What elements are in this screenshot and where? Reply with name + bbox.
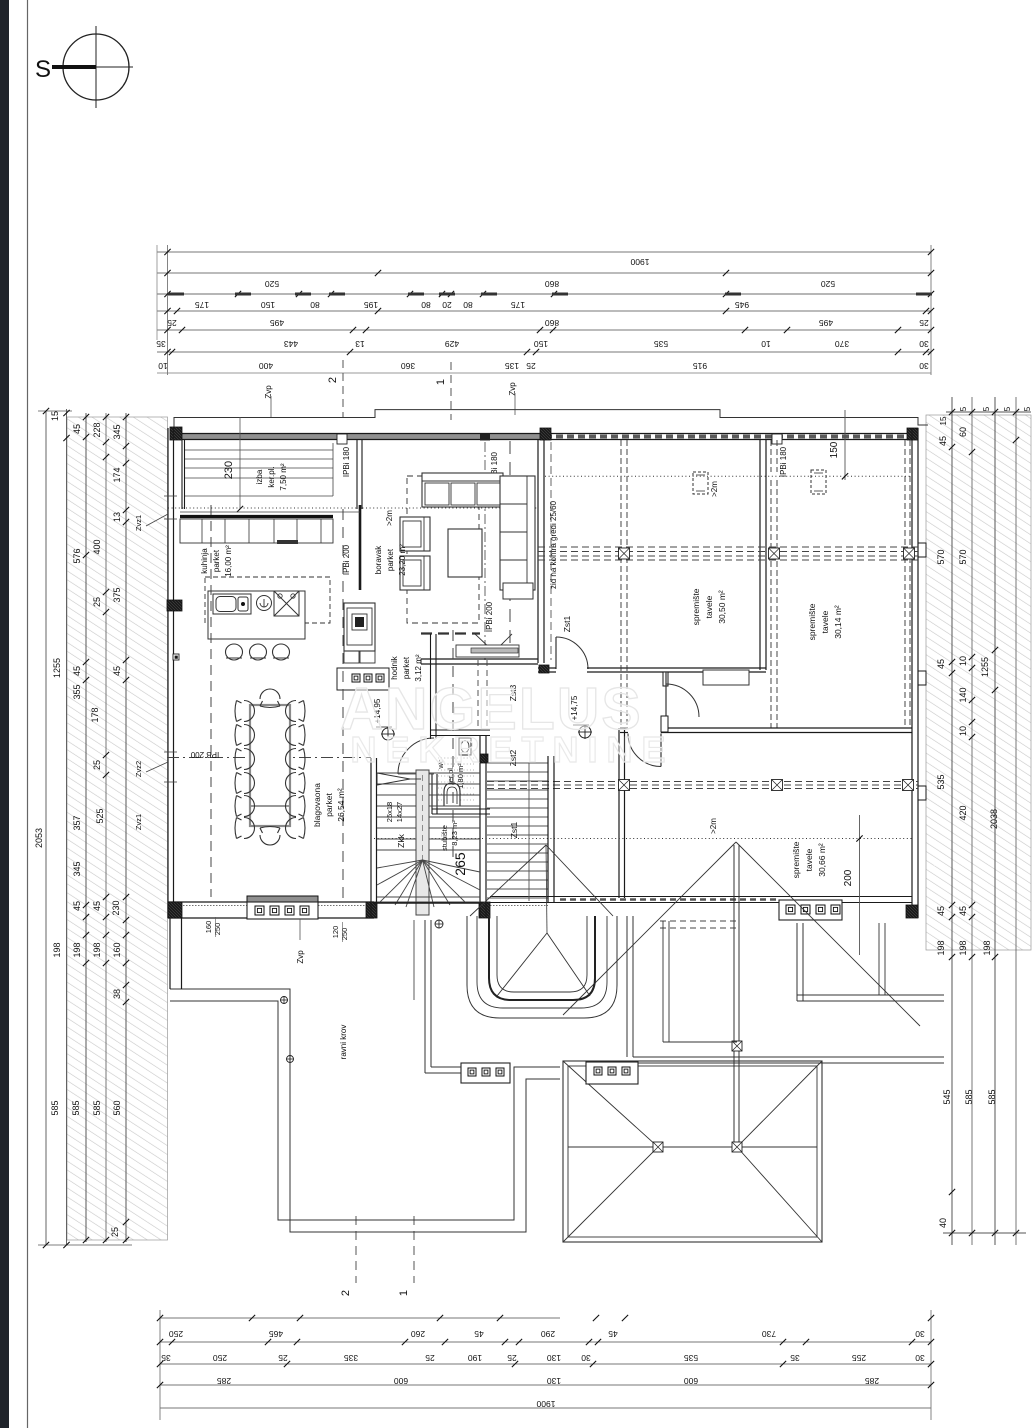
svg-text:195: 195	[364, 300, 378, 310]
svg-text:160: 160	[204, 921, 213, 934]
svg-text:375: 375	[112, 587, 122, 602]
svg-text:174: 174	[112, 467, 122, 482]
svg-text:Zvp: Zvp	[264, 385, 273, 399]
svg-text:parket: parket	[212, 549, 221, 572]
svg-text:30: 30	[581, 1353, 591, 1363]
svg-text:1255: 1255	[980, 657, 990, 677]
svg-text:360: 360	[401, 361, 415, 371]
svg-text:30,66 m²: 30,66 m²	[817, 843, 827, 877]
svg-text:585: 585	[71, 1100, 81, 1115]
svg-text:198: 198	[92, 942, 102, 957]
svg-text:2053: 2053	[34, 828, 44, 848]
svg-text:38: 38	[112, 989, 122, 999]
svg-text:parket: parket	[324, 793, 334, 817]
svg-text:335: 335	[344, 1353, 358, 1363]
svg-text:465: 465	[269, 1329, 283, 1339]
svg-text:255: 255	[852, 1353, 866, 1363]
svg-text:260: 260	[411, 1329, 425, 1339]
svg-text:250: 250	[213, 923, 222, 936]
svg-text:600: 600	[394, 1376, 408, 1386]
svg-text:585: 585	[50, 1100, 60, 1115]
svg-text:7,50 m²: 7,50 m²	[279, 463, 288, 490]
svg-text:parket: parket	[386, 548, 395, 571]
svg-text:520: 520	[265, 279, 279, 289]
svg-text:kuhinja: kuhinja	[200, 548, 209, 574]
svg-text:izba: izba	[255, 469, 264, 484]
svg-text:45: 45	[72, 424, 82, 434]
svg-text:IPBi 200: IPBi 200	[485, 601, 494, 632]
svg-text:25: 25	[92, 597, 102, 607]
svg-text:560: 560	[112, 1100, 122, 1115]
svg-text:35: 35	[161, 1353, 171, 1363]
svg-text:370: 370	[835, 339, 849, 349]
svg-text:ker.pl.: ker.pl.	[267, 466, 276, 487]
svg-text:tavele: tavele	[804, 848, 814, 871]
svg-text:spremište: spremište	[691, 588, 701, 625]
svg-text:585: 585	[987, 1089, 997, 1104]
svg-text:>2m: >2m	[710, 481, 719, 497]
svg-text:860: 860	[545, 279, 559, 289]
svg-text:495: 495	[270, 318, 284, 328]
svg-text:420: 420	[958, 805, 968, 820]
svg-text:IPB 200: IPB 200	[190, 750, 219, 759]
svg-text:520: 520	[821, 279, 835, 289]
svg-text:zid na kontra gredi 25/60: zid na kontra gredi 25/60	[549, 500, 558, 589]
svg-text:730: 730	[762, 1329, 776, 1339]
svg-text:45: 45	[72, 666, 82, 676]
svg-text:230: 230	[111, 900, 121, 915]
svg-text:585: 585	[92, 1100, 102, 1115]
svg-text:14x27: 14x27	[395, 802, 404, 822]
svg-text:585: 585	[964, 1089, 974, 1104]
svg-text:26,54 m²: 26,54 m²	[336, 788, 346, 822]
svg-text:Zkk: Zkk	[396, 833, 406, 847]
svg-text:80: 80	[421, 300, 431, 310]
svg-text:60: 60	[958, 427, 968, 437]
svg-text:535: 535	[684, 1353, 698, 1363]
svg-text:25: 25	[919, 318, 929, 328]
svg-text:2038: 2038	[989, 809, 999, 829]
svg-text:Zvz2: Zvz2	[134, 761, 143, 777]
svg-text:5: 5	[982, 406, 991, 411]
svg-text:1900: 1900	[630, 257, 649, 267]
svg-text:120: 120	[331, 926, 340, 939]
svg-text:2: 2	[327, 377, 339, 383]
svg-text:30: 30	[919, 361, 929, 371]
svg-text:Zvp: Zvp	[508, 382, 517, 396]
svg-text:45: 45	[112, 666, 122, 676]
svg-text:5: 5	[959, 406, 968, 411]
svg-text:130: 130	[547, 1353, 561, 1363]
svg-text:8,23 m²: 8,23 m²	[450, 820, 459, 846]
svg-text:198: 198	[72, 942, 82, 957]
svg-text:265: 265	[452, 852, 468, 876]
svg-text:80: 80	[463, 300, 473, 310]
svg-text:140: 140	[958, 687, 968, 702]
svg-text:945: 945	[735, 300, 749, 310]
svg-text:15: 15	[50, 411, 60, 421]
svg-text:1: 1	[435, 379, 447, 385]
svg-text:10: 10	[958, 726, 968, 736]
svg-text:1: 1	[398, 1290, 410, 1296]
svg-text:175: 175	[195, 300, 209, 310]
svg-text:35: 35	[156, 339, 166, 349]
svg-text:spremište: spremište	[791, 841, 801, 878]
svg-text:10: 10	[158, 361, 168, 371]
svg-text:570: 570	[958, 549, 968, 564]
svg-text:stubište: stubište	[440, 825, 449, 851]
svg-text:45: 45	[936, 906, 946, 916]
svg-text:525: 525	[95, 808, 105, 823]
svg-text:130: 130	[547, 1376, 561, 1386]
svg-text:30: 30	[915, 1353, 925, 1363]
svg-text:400: 400	[92, 539, 102, 554]
svg-text:ravni krov: ravni krov	[339, 1025, 348, 1060]
svg-text:535: 535	[936, 774, 946, 789]
svg-text:150: 150	[534, 339, 548, 349]
svg-text:860: 860	[545, 318, 559, 328]
svg-text:boravak: boravak	[374, 545, 383, 574]
svg-text:45: 45	[958, 906, 968, 916]
svg-text:>2m: >2m	[709, 818, 718, 834]
svg-text:45: 45	[938, 436, 948, 446]
svg-text:45: 45	[608, 1329, 618, 1339]
svg-text:198: 198	[936, 940, 946, 955]
svg-text:25: 25	[110, 1227, 120, 1237]
svg-text:5: 5	[1003, 406, 1012, 411]
svg-text:10: 10	[761, 339, 771, 349]
svg-text:150: 150	[829, 441, 840, 458]
svg-text:443: 443	[284, 339, 298, 349]
svg-text:5: 5	[1023, 406, 1032, 411]
svg-text:1255: 1255	[52, 658, 62, 678]
svg-text:45: 45	[474, 1329, 484, 1339]
svg-text:198: 198	[982, 940, 992, 955]
svg-text:175: 175	[511, 300, 525, 310]
svg-text:Zst1: Zst1	[562, 615, 572, 632]
svg-text:535: 535	[654, 339, 668, 349]
svg-text:30: 30	[919, 339, 929, 349]
svg-text:Zst1: Zst1	[509, 821, 519, 838]
svg-text:25: 25	[425, 1353, 435, 1363]
svg-text:blagovaona: blagovaona	[312, 783, 322, 827]
svg-text:30,50 m²: 30,50 m²	[717, 590, 727, 624]
svg-text:spremište: spremište	[807, 603, 817, 640]
svg-text:570: 570	[936, 549, 946, 564]
svg-text:915: 915	[693, 361, 707, 371]
svg-text:198: 198	[52, 942, 62, 957]
svg-text:80: 80	[310, 300, 320, 310]
svg-text:345: 345	[112, 424, 122, 439]
svg-text:230: 230	[223, 461, 235, 479]
svg-text:355: 355	[72, 684, 82, 699]
svg-text:tavele: tavele	[704, 595, 714, 618]
svg-text:178: 178	[90, 707, 100, 722]
svg-text:13: 13	[355, 339, 365, 349]
svg-text:>2m: >2m	[385, 510, 394, 526]
svg-text:250: 250	[340, 928, 349, 941]
svg-text:285: 285	[217, 1376, 231, 1386]
svg-text:400: 400	[259, 361, 273, 371]
svg-text:160: 160	[112, 942, 122, 957]
svg-text:200: 200	[843, 869, 854, 886]
svg-text:45: 45	[92, 901, 102, 911]
svg-text:NEKRETNINE: NEKRETNINE	[350, 729, 674, 770]
svg-text:285: 285	[865, 1376, 879, 1386]
svg-text:Zvz1: Zvz1	[134, 515, 143, 531]
svg-text:228: 228	[92, 422, 102, 437]
svg-text:1900: 1900	[536, 1399, 555, 1409]
svg-text:23,20 m²: 23,20 m²	[398, 544, 407, 576]
svg-text:576: 576	[72, 548, 82, 563]
svg-text:45: 45	[936, 659, 946, 669]
svg-text:250: 250	[213, 1353, 227, 1363]
svg-text:2: 2	[340, 1290, 352, 1296]
svg-text:600: 600	[684, 1376, 698, 1386]
svg-text:IPBi 180: IPBi 180	[779, 446, 788, 477]
svg-text:25: 25	[92, 760, 102, 770]
svg-text:tavele: tavele	[820, 610, 830, 633]
svg-text:545: 545	[942, 1089, 952, 1104]
svg-text:25: 25	[507, 1353, 517, 1363]
svg-text:15: 15	[939, 416, 948, 425]
svg-text:35: 35	[790, 1353, 800, 1363]
svg-text:10: 10	[958, 656, 968, 666]
svg-text:20: 20	[442, 300, 452, 310]
svg-text:25: 25	[167, 318, 177, 328]
svg-text:495: 495	[819, 318, 833, 328]
svg-text:250: 250	[169, 1329, 183, 1339]
svg-text:25: 25	[526, 361, 536, 371]
svg-text:150: 150	[261, 300, 275, 310]
svg-text:135: 135	[505, 361, 519, 371]
svg-text:345: 345	[72, 861, 82, 876]
svg-text:190: 190	[468, 1353, 482, 1363]
svg-text:290: 290	[541, 1329, 555, 1339]
svg-text:40: 40	[938, 1218, 948, 1228]
svg-text:25x18: 25x18	[385, 802, 394, 822]
svg-text:S: S	[35, 56, 51, 83]
svg-text:25: 25	[278, 1353, 288, 1363]
svg-text:30: 30	[915, 1329, 925, 1339]
svg-text:429: 429	[445, 339, 459, 349]
svg-text:13: 13	[112, 512, 122, 522]
svg-text:Zvz1: Zvz1	[134, 814, 143, 830]
svg-text:198: 198	[958, 940, 968, 955]
svg-text:357: 357	[72, 815, 82, 830]
svg-text:Zvp: Zvp	[296, 950, 305, 964]
svg-text:IPBi 180: IPBi 180	[342, 446, 351, 477]
svg-text:16,00 m²: 16,00 m²	[224, 545, 233, 577]
svg-text:45: 45	[72, 901, 82, 911]
svg-text:30,14 m²: 30,14 m²	[833, 605, 843, 639]
